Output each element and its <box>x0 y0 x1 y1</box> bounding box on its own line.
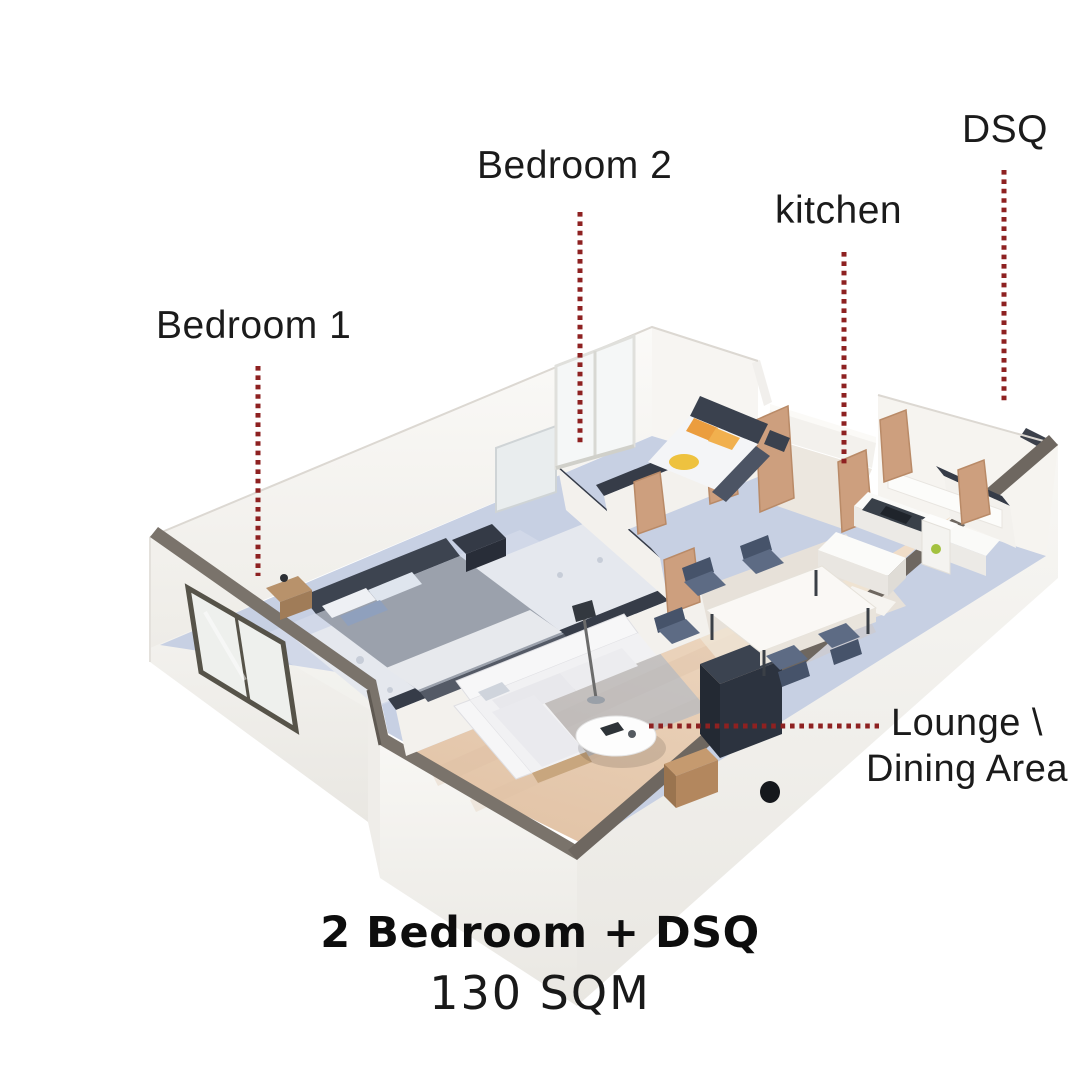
plan-title: 2 Bedroom + DSQ <box>0 908 1080 958</box>
lounge-label-line-1: Lounge \ <box>862 700 1072 746</box>
bedroom-2-window <box>556 336 634 468</box>
lounge-label-line-2: Dining Area <box>862 746 1072 792</box>
room-label-bedroom-2: Bedroom 2 <box>477 144 672 189</box>
room-label-kitchen: kitchen <box>775 189 902 234</box>
plan-area: 130 SQM <box>0 966 1080 1020</box>
floor-plan-poster: Bedroom 1 Bedroom 2 kitchen DSQ Lounge \… <box>0 0 1080 1080</box>
room-label-dsq: DSQ <box>962 108 1048 153</box>
room-label-bedroom-1: Bedroom 1 <box>156 304 351 349</box>
room-label-lounge-dining: Lounge \ Dining Area <box>862 700 1072 793</box>
